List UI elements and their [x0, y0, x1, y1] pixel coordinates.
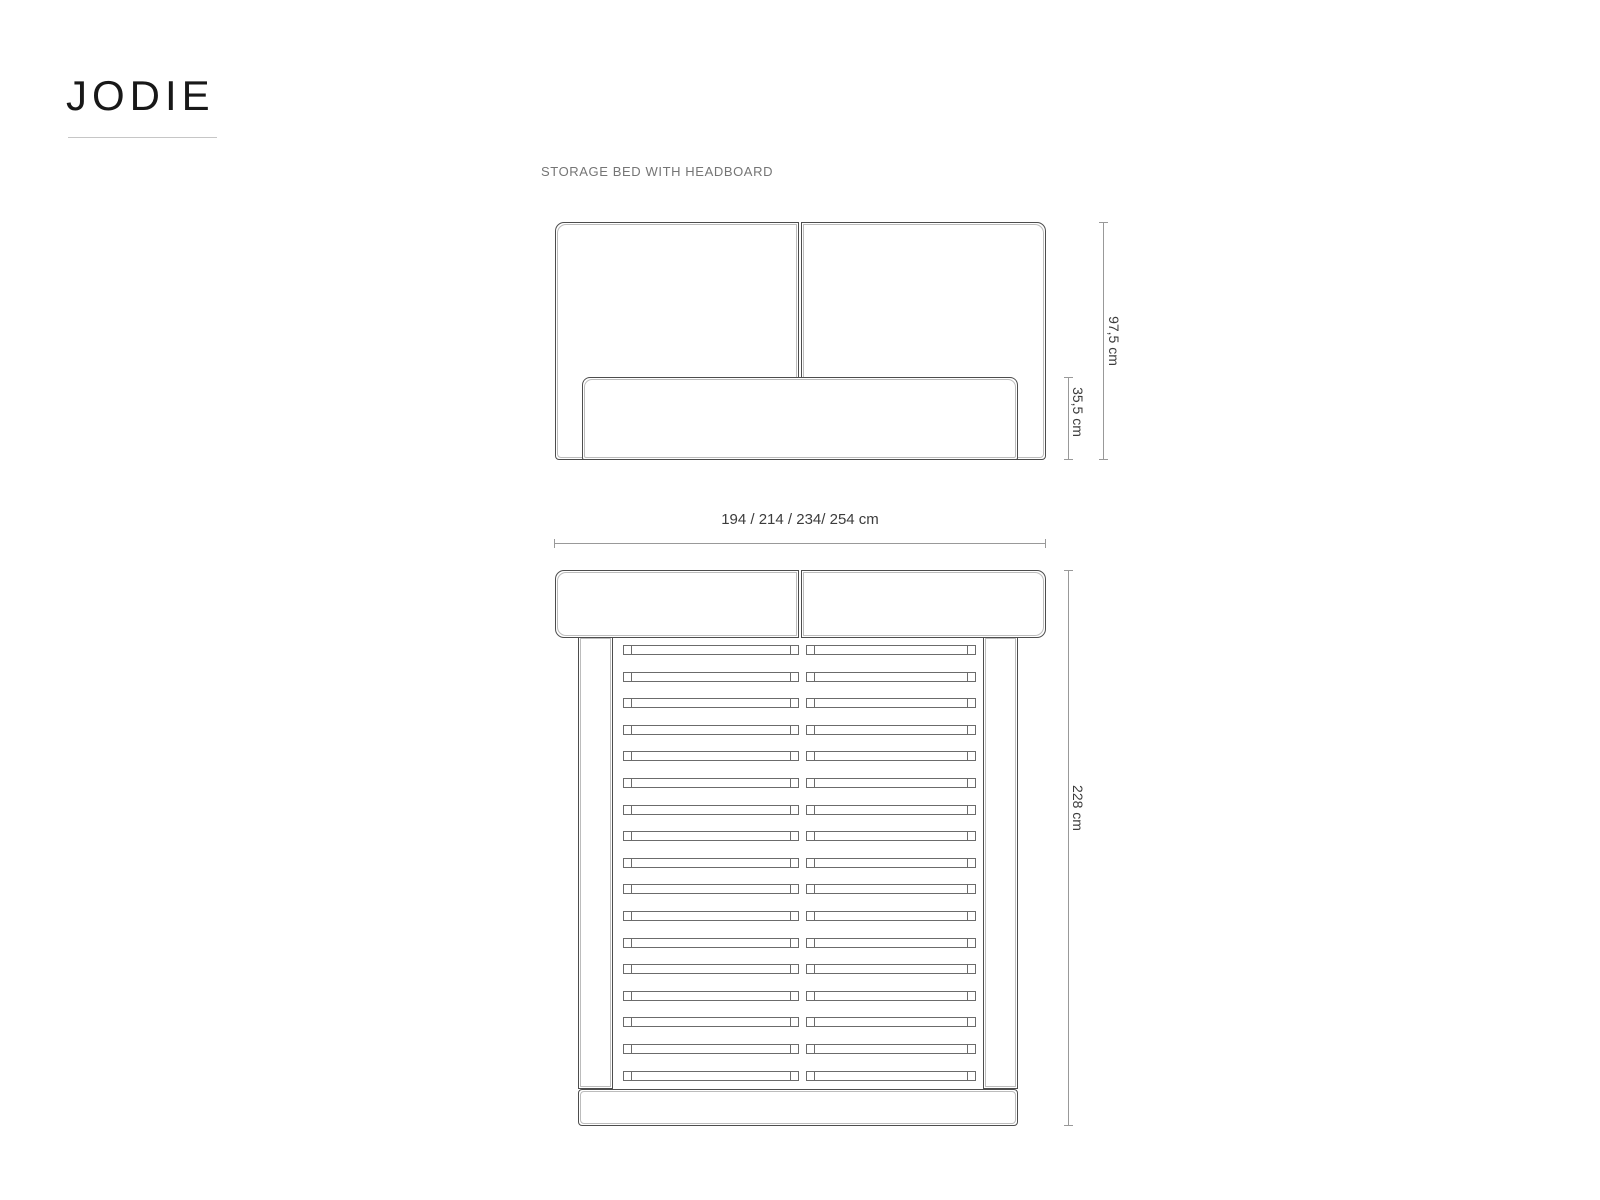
bed-slat-right	[806, 1071, 976, 1081]
bed-slat-left	[623, 911, 799, 921]
dimension-label-bed-width: 194 / 214 / 234/ 254 cm	[700, 511, 900, 528]
dimension-line-headboard-height	[1103, 222, 1104, 460]
bed-slat-right	[806, 1044, 976, 1054]
bed-slat-left	[623, 1044, 799, 1054]
bed-slat-left	[623, 884, 799, 894]
bed-slat-right	[806, 884, 976, 894]
bed-slat-right	[806, 725, 976, 735]
spec-sheet: JODIE STORAGE BED WITH HEADBOARD 97,5 cm…	[0, 0, 1600, 1200]
top-headboard-right-panel	[801, 570, 1046, 638]
frame-height-value: 35,5 cm	[1070, 387, 1086, 437]
bed-slat-left	[623, 938, 799, 948]
headboard-height-value: 97,5 cm	[1106, 316, 1122, 366]
bed-slat-left	[623, 805, 799, 815]
bed-slat-right	[806, 778, 976, 788]
bed-slat-left	[623, 725, 799, 735]
bed-slat-left	[623, 672, 799, 682]
bed-slat-right	[806, 831, 976, 841]
dimension-line-bed-length	[1068, 570, 1069, 1126]
bed-slat-left	[623, 1071, 799, 1081]
bed-slat-right	[806, 911, 976, 921]
bed-slat-right	[806, 938, 976, 948]
bed-slat-right	[806, 698, 976, 708]
bed-slat-left	[623, 1017, 799, 1027]
bed-slat-left	[623, 751, 799, 761]
dimension-line-frame-height	[1068, 377, 1069, 460]
bed-slat-left	[623, 858, 799, 868]
bed-slat-left	[623, 698, 799, 708]
bed-slat-left	[623, 991, 799, 1001]
bed-length-value: 228 cm	[1070, 785, 1086, 831]
dimension-line-bed-width	[554, 543, 1046, 544]
bed-slat-right	[806, 964, 976, 974]
bed-slat-right	[806, 751, 976, 761]
front-bed-frame	[582, 377, 1018, 460]
bed-slat-left	[623, 964, 799, 974]
bed-slat-right	[806, 672, 976, 682]
bed-slat-left	[623, 831, 799, 841]
bed-slat-left	[623, 778, 799, 788]
top-headboard-left-panel	[555, 570, 799, 638]
slat-area	[0, 0, 1600, 1200]
bed-slat-left	[623, 645, 799, 655]
top-foot-rail	[578, 1089, 1018, 1126]
bed-slat-right	[806, 1017, 976, 1027]
bed-slat-right	[806, 858, 976, 868]
bed-slat-right	[806, 645, 976, 655]
bed-slat-right	[806, 805, 976, 815]
bed-slat-right	[806, 991, 976, 1001]
